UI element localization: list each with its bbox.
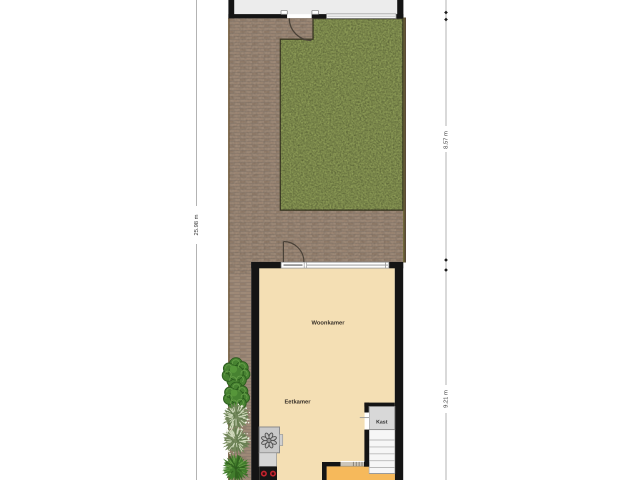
svg-text:25.98 m: 25.98 m [193,214,200,235]
svg-text:Eetkamer: Eetkamer [284,399,311,406]
svg-text:9.21 m: 9.21 m [443,390,450,408]
svg-text:Woonkamer: Woonkamer [311,320,345,327]
svg-text:8.57 m: 8.57 m [443,131,450,149]
svg-text:Kast: Kast [376,420,388,426]
